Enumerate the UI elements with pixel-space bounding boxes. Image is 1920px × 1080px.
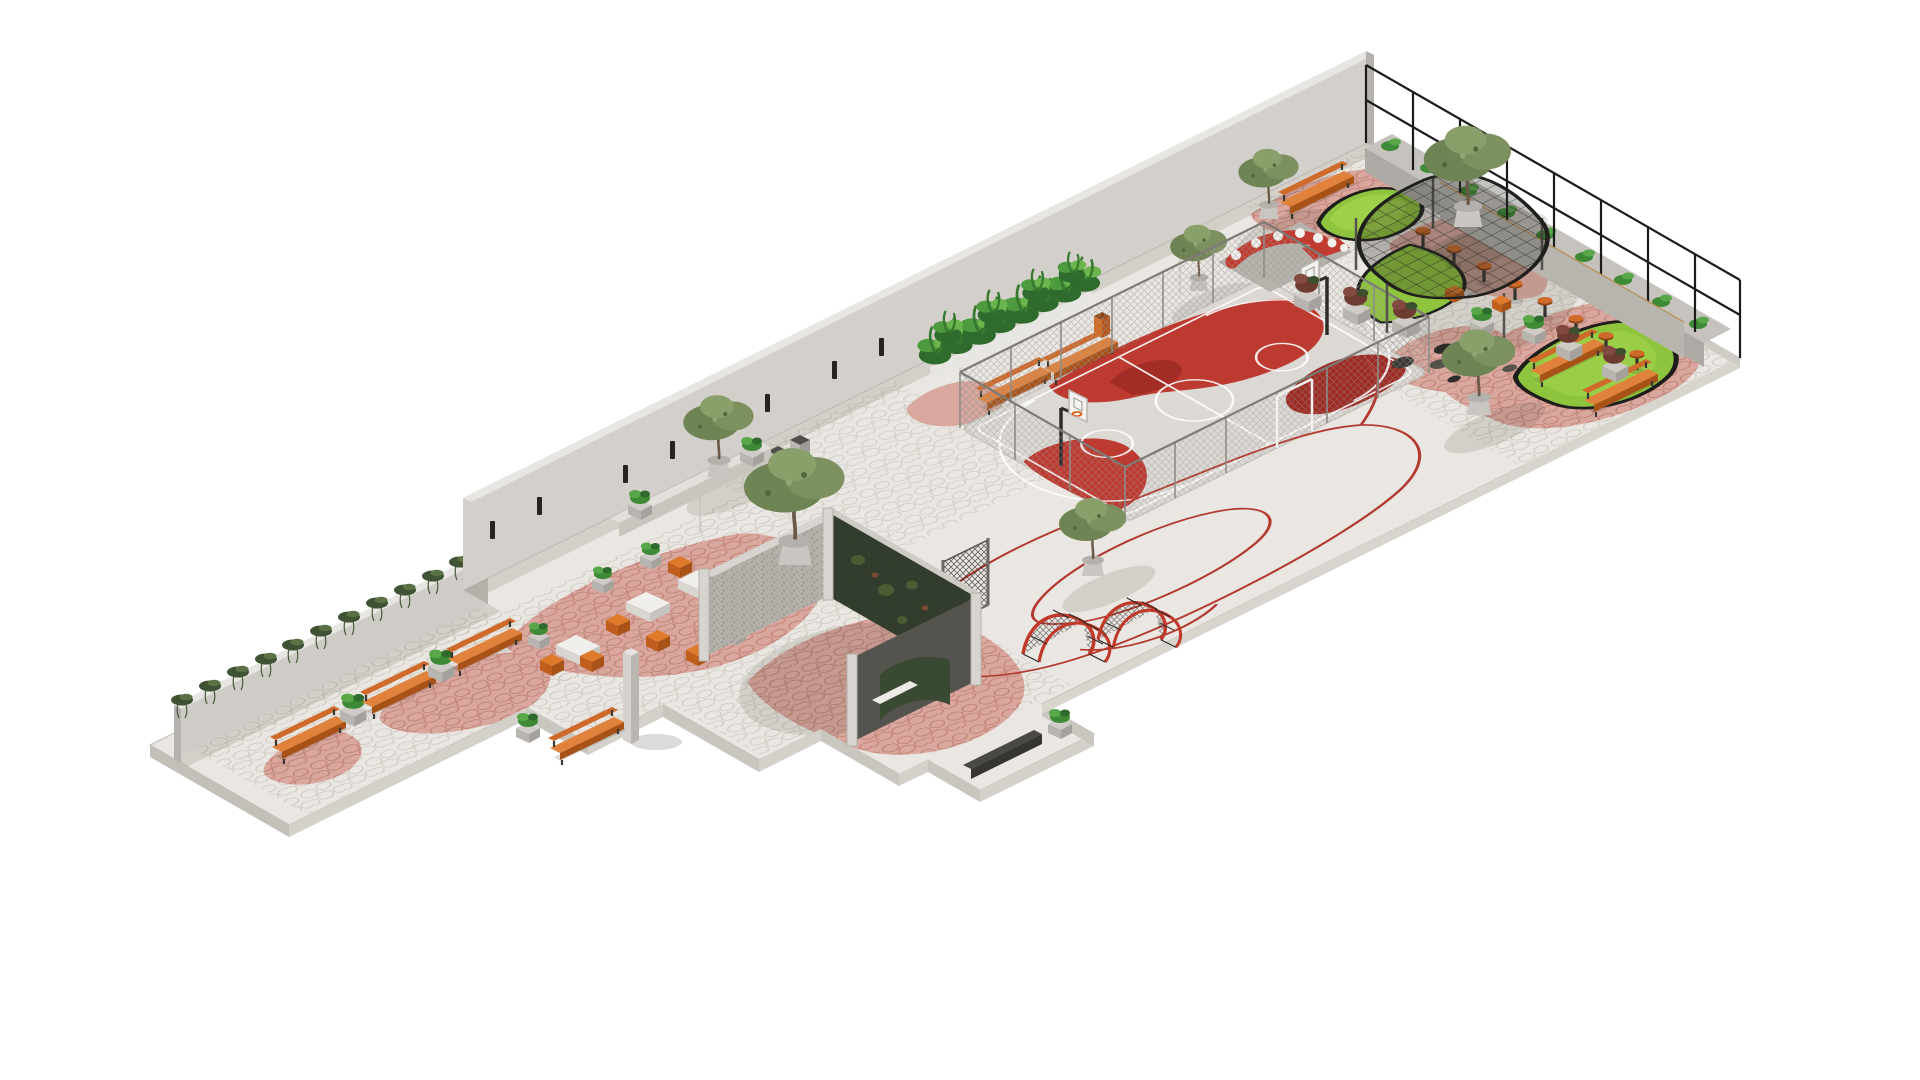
ledge-planter (628, 490, 652, 520)
canopy-planter (1522, 315, 1546, 345)
render-canvas (0, 0, 1920, 1080)
planter (1048, 709, 1072, 739)
park-axonometric-rendering (0, 0, 1920, 1080)
planter (516, 713, 540, 743)
ledge-planter (740, 437, 764, 467)
